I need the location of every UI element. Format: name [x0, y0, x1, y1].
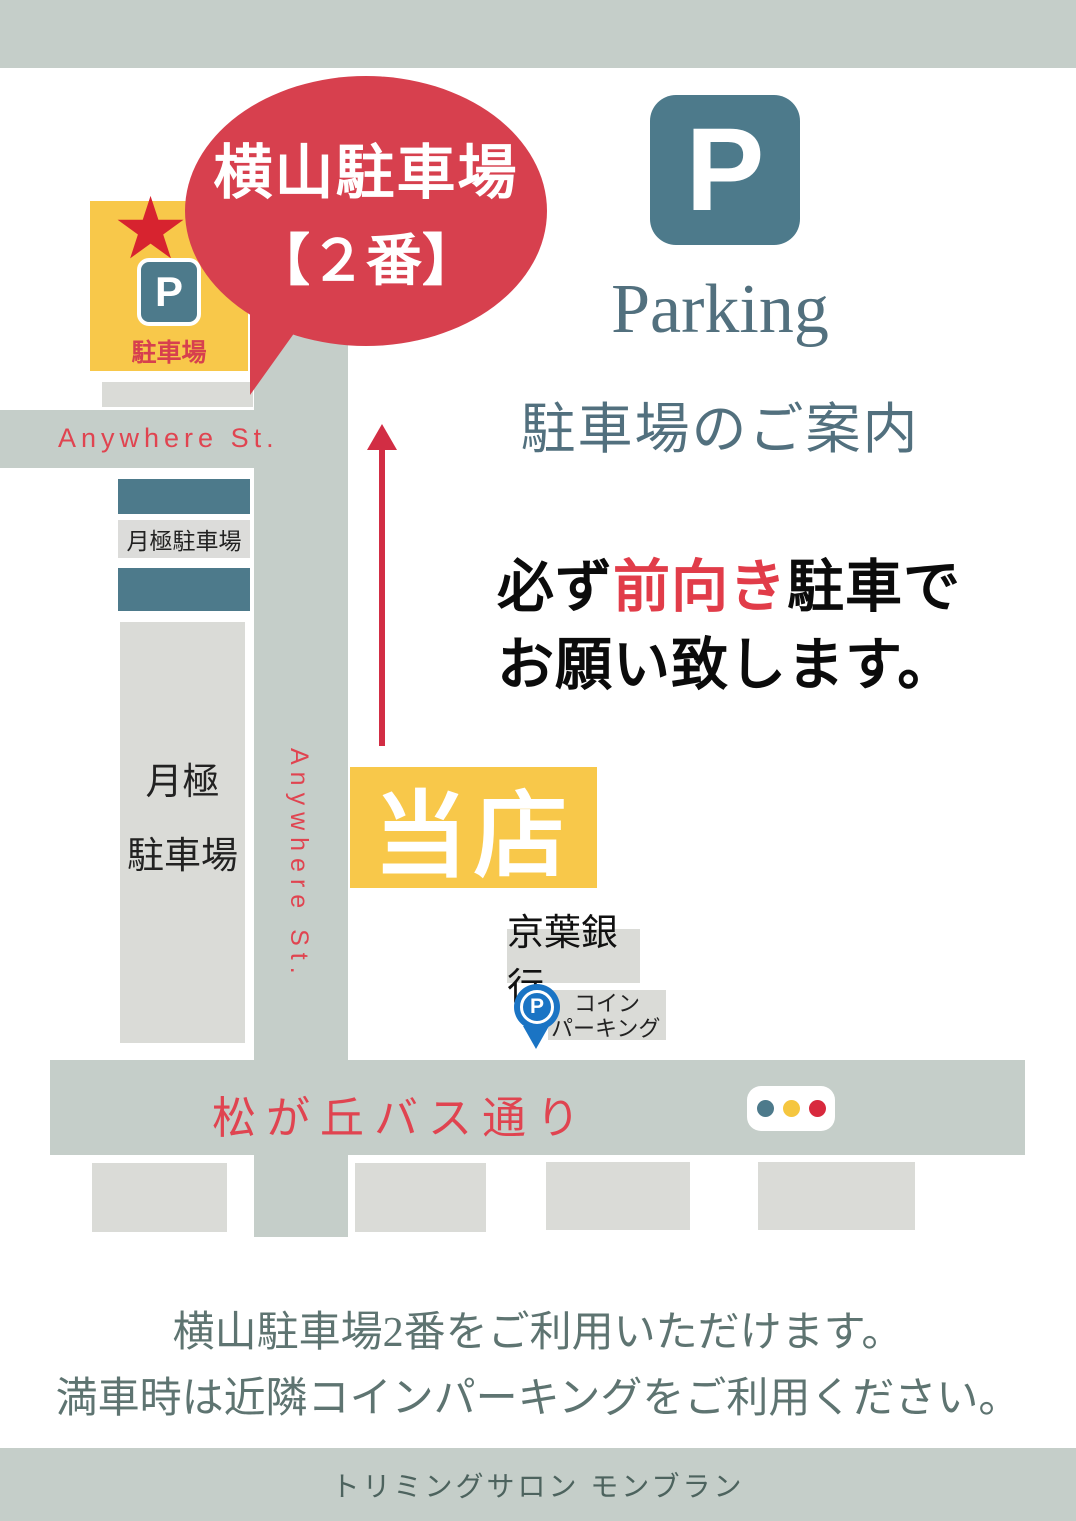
notice-line1-post: 駐車で: [787, 555, 961, 619]
bank-label: 京葉銀行: [507, 929, 640, 983]
speech-bubble: 横山駐車場 【２番】: [185, 76, 547, 346]
parking-sign-label: 駐車場: [90, 333, 248, 369]
coin-parking-line1: コイン: [574, 991, 666, 1016]
street-label-anywhere-vertical: Anywhere St.: [284, 748, 313, 981]
street-label-bus: 松が丘バス通り: [212, 1082, 590, 1146]
building-block: [758, 1162, 915, 1230]
building-strip: [102, 382, 253, 407]
traffic-light-green-dot: [757, 1100, 774, 1117]
notice-line1-pre: 必ず: [497, 555, 613, 619]
map-pin-tail: [523, 1026, 549, 1049]
building-block: [546, 1162, 690, 1230]
notice-line2: お願い致します。: [497, 626, 961, 704]
up-arrow-icon: [367, 424, 397, 450]
big-p-icon: P: [650, 95, 800, 245]
map-pin-icon: P: [514, 984, 560, 1050]
parking-sign-icon: P: [137, 258, 201, 326]
parking-strip-2: [118, 568, 250, 611]
traffic-light-yellow-dot: [783, 1100, 800, 1117]
speech-bubble-line2: 【２番】: [254, 216, 478, 297]
monthly-parking-big-line2: 駐車場: [127, 825, 238, 879]
shop-box: 当店: [350, 767, 597, 888]
monthly-parking-big-line1: 月極: [146, 751, 220, 805]
footer-shop-name: トリミングサロン モンブラン: [332, 1465, 745, 1505]
usage-note-line2: 満車時は近隣コインパーキングをご利用ください。: [0, 1366, 1076, 1432]
monthly-parking-big-block: 月極 駐車場: [120, 622, 245, 1043]
top-border-band: [0, 0, 1076, 68]
map-pin-head: P: [514, 984, 560, 1030]
map-pin-p: P: [520, 990, 554, 1024]
coin-parking-label: コイン パーキング: [548, 990, 666, 1040]
page-title-ja: 駐車場のご案内: [470, 384, 970, 464]
notice-line1: 必ず前向き駐車で: [497, 548, 961, 626]
monthly-parking-small-label: 月極駐車場: [118, 520, 250, 558]
page-title-en: Parking: [555, 270, 885, 350]
street-label-anywhere-horizontal: Anywhere St.: [58, 423, 279, 454]
parking-guide-flyer: Anywhere St. Anywhere St. 松が丘バス通り 月極駐車場 …: [0, 0, 1076, 1521]
traffic-light-icon: [747, 1086, 835, 1131]
traffic-light-red-dot: [809, 1100, 826, 1117]
coin-parking-line2: パーキング: [551, 1016, 666, 1041]
speech-bubble-line1: 横山駐車場: [213, 125, 518, 210]
usage-note-line1: 横山駐車場2番をご利用いただけます。: [0, 1300, 1076, 1366]
front-parking-notice: 必ず前向き駐車で お願い致します。: [497, 548, 961, 704]
footer-band: トリミングサロン モンブラン: [0, 1448, 1076, 1521]
building-block: [355, 1163, 486, 1232]
parking-strip-1: [118, 479, 250, 514]
route-arrow-line: [379, 446, 385, 746]
usage-note: 横山駐車場2番をご利用いただけます。 満車時は近隣コインパーキングをご利用くださ…: [0, 1300, 1076, 1432]
notice-line1-highlight: 前向き: [613, 555, 787, 619]
building-block: [92, 1163, 227, 1232]
